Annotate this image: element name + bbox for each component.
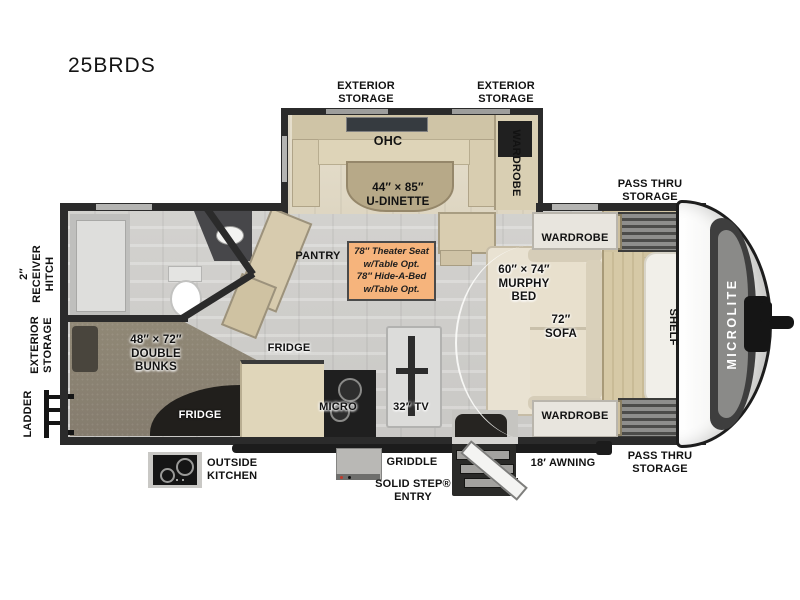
- brand-logo: MICROLITE: [725, 249, 741, 399]
- dinette-bench-right: [468, 139, 496, 207]
- label-outside-kitchen: OUTSIDE KITCHEN: [207, 457, 277, 483]
- awning-end-cap: [596, 441, 612, 455]
- label-u-dinette: 44″ × 85″ U-DINETTE: [348, 182, 448, 209]
- sofa-back: [586, 260, 602, 398]
- corner-step: [440, 250, 472, 266]
- outside-kitchen-knob-2: [182, 479, 184, 481]
- label-ladder: LADDER: [22, 379, 36, 449]
- bed-side-rail: [604, 252, 644, 400]
- label-exterior-storage-side: EXTERIOR STORAGE: [29, 303, 59, 387]
- hitch-jack-stub: [760, 302, 772, 322]
- label-shelf: SHELF: [665, 297, 679, 357]
- label-double-bunks: 48″ × 72″ DOUBLE BUNKS: [116, 334, 196, 375]
- label-griddle: GRIDDLE: [382, 456, 442, 469]
- page-title: 25BRDS: [68, 54, 156, 78]
- outside-kitchen-burner-small: [160, 468, 175, 483]
- label-pantry: PANTRY: [288, 250, 348, 263]
- pass-thru-bin-top: [618, 212, 682, 252]
- label-wardrobe-top: WARDROBE: [532, 232, 618, 245]
- label-awning: 18′ AWNING: [523, 457, 603, 470]
- slideout-window: [346, 117, 428, 132]
- label-solid-step: SOLID STEP® ENTRY: [368, 478, 458, 504]
- wall-bath-bottom: [62, 315, 188, 322]
- awning-tube: [232, 444, 610, 453]
- label-pass-thru-bottom: PASS THRU STORAGE: [612, 450, 708, 476]
- label-fridge-outside: FRIDGE: [170, 409, 230, 422]
- label-micro: MICRO: [308, 401, 368, 414]
- label-exterior-storage-right: EXTERIOR STORAGE: [456, 80, 556, 106]
- label-ohc: OHC: [368, 134, 408, 149]
- exterior-storage-door-right: [452, 109, 510, 114]
- label-pass-thru-top: PASS THRU STORAGE: [602, 178, 698, 204]
- outside-kitchen-burner-large: [176, 458, 194, 476]
- label-murphy-bed: 60″ × 74″ MURPHY BED: [482, 264, 566, 305]
- outside-kitchen-knob-1: [176, 479, 178, 481]
- griddle-knob-red: [340, 476, 343, 479]
- label-exterior-storage-left: EXTERIOR STORAGE: [316, 80, 416, 106]
- label-fridge-main: FRIDGE: [259, 342, 319, 355]
- label-wardrobe-bottom: WARDROBE: [532, 410, 618, 423]
- stove-burner-large: [338, 378, 362, 402]
- tv-mount-cross: [396, 368, 428, 374]
- window-top-left: [96, 204, 152, 210]
- wall-top-left: [60, 203, 288, 211]
- exterior-storage-door-left: [326, 109, 388, 114]
- floorplan-canvas: 25BRDS: [0, 0, 800, 600]
- shower-pan: [76, 220, 126, 312]
- griddle-knob-black: [348, 476, 351, 479]
- dinette-bench-left: [292, 139, 320, 207]
- slideout-side-window: [282, 136, 287, 182]
- label-sofa: 72″ SOFA: [536, 314, 586, 341]
- label-tv: 32″ TV: [381, 401, 441, 414]
- bunk-headboard: [72, 326, 98, 372]
- pass-thru-bin-bottom: [618, 398, 682, 438]
- window-top-right: [552, 204, 598, 210]
- label-wardrobe-slideout: WARDROBE: [508, 123, 522, 203]
- options-note: 78″ Theater Seat w/Table Opt. 78″ Hide-A…: [347, 241, 436, 301]
